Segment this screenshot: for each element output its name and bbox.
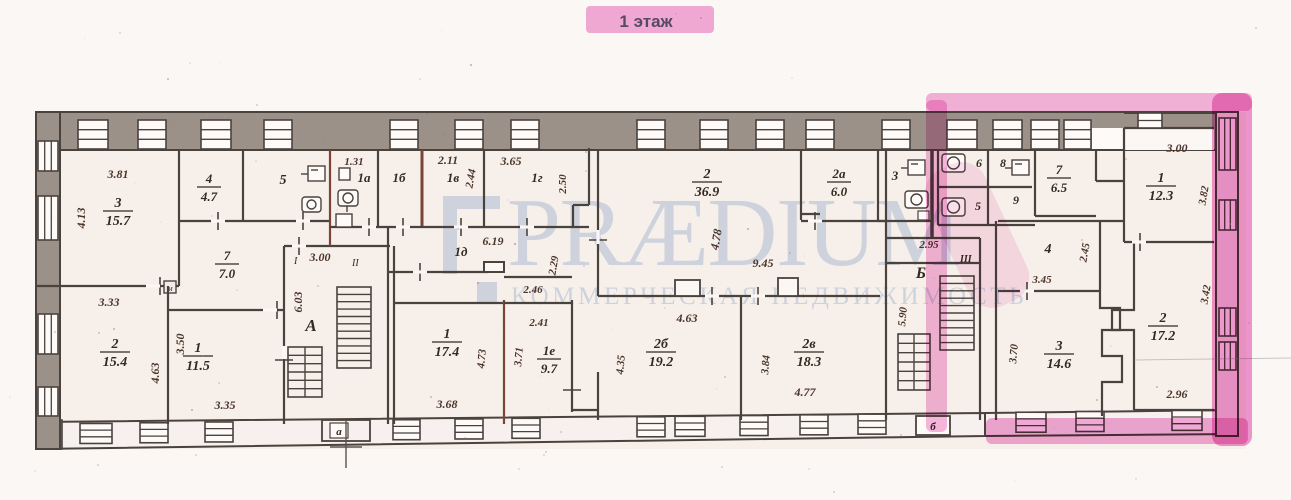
svg-text:2: 2 xyxy=(1159,311,1167,326)
svg-text:3.65: 3.65 xyxy=(500,154,522,168)
svg-text:2: 2 xyxy=(111,337,119,352)
svg-text:6.19: 6.19 xyxy=(483,234,504,248)
svg-text:4.35: 4.35 xyxy=(614,354,628,376)
svg-text:3.50: 3.50 xyxy=(173,334,187,356)
svg-text:2.46: 2.46 xyxy=(522,284,543,296)
svg-text:2.50: 2.50 xyxy=(557,174,569,195)
svg-text:3.33: 3.33 xyxy=(98,295,120,309)
svg-text:9.7: 9.7 xyxy=(541,361,558,376)
svg-text:3.81: 3.81 xyxy=(107,167,129,181)
svg-text:1а: 1а xyxy=(358,170,372,185)
svg-text:PRÆDIUM: PRÆDIUM xyxy=(507,179,960,286)
svg-text:а: а xyxy=(336,426,342,438)
svg-text:6.03: 6.03 xyxy=(291,292,305,313)
svg-text:14.6: 14.6 xyxy=(1047,357,1072,372)
svg-text:3.71: 3.71 xyxy=(512,347,526,368)
svg-text:3.70: 3.70 xyxy=(1007,343,1021,365)
svg-text:1: 1 xyxy=(1158,171,1165,186)
svg-text:2: 2 xyxy=(703,167,711,182)
svg-text:18.3: 18.3 xyxy=(797,355,822,370)
svg-text:3.45: 3.45 xyxy=(1031,274,1052,286)
svg-text:3.84: 3.84 xyxy=(759,354,773,376)
svg-text:3.68: 3.68 xyxy=(436,397,458,411)
svg-text:17.2: 17.2 xyxy=(1151,329,1176,344)
svg-text:1: 1 xyxy=(195,341,202,356)
svg-text:1: 1 xyxy=(444,327,451,342)
svg-text:6.0: 6.0 xyxy=(831,184,848,199)
svg-text:I: I xyxy=(293,256,298,267)
svg-text:5.90: 5.90 xyxy=(896,306,910,327)
svg-text:2б: 2б xyxy=(653,337,669,352)
svg-text:1в: 1в xyxy=(447,170,460,185)
svg-text:7: 7 xyxy=(224,248,231,263)
svg-text:2в: 2в xyxy=(801,337,816,352)
svg-text:4.63: 4.63 xyxy=(148,363,162,385)
svg-text:2а: 2а xyxy=(832,166,847,181)
svg-text:4.7: 4.7 xyxy=(200,189,218,204)
svg-text:4: 4 xyxy=(205,171,213,186)
svg-text:4: 4 xyxy=(1044,242,1052,257)
svg-text:II: II xyxy=(351,258,359,269)
svg-text:2.96: 2.96 xyxy=(1166,387,1188,401)
svg-text:3.00: 3.00 xyxy=(1166,141,1188,155)
svg-text:А: А xyxy=(304,316,316,335)
svg-text:2.41: 2.41 xyxy=(528,317,548,329)
svg-text:3.35: 3.35 xyxy=(214,398,236,412)
svg-text:11.5: 11.5 xyxy=(186,359,210,374)
svg-text:7: 7 xyxy=(1056,162,1063,177)
svg-text:4.73: 4.73 xyxy=(475,348,489,370)
svg-text:19.2: 19.2 xyxy=(649,355,674,370)
svg-text:15.7: 15.7 xyxy=(106,214,132,229)
svg-text:12.3: 12.3 xyxy=(1149,189,1174,204)
svg-text:7.0: 7.0 xyxy=(219,266,236,281)
svg-text:36.9: 36.9 xyxy=(694,185,720,200)
svg-text:1б: 1б xyxy=(393,170,407,185)
svg-text:1е: 1е xyxy=(543,343,556,358)
svg-text:1д: 1д xyxy=(455,244,469,259)
svg-text:3.00: 3.00 xyxy=(309,250,331,264)
svg-text:4.63: 4.63 xyxy=(676,311,698,325)
svg-text:3: 3 xyxy=(1055,339,1063,354)
svg-text:1.31: 1.31 xyxy=(344,156,363,168)
svg-text:5: 5 xyxy=(280,173,287,188)
svg-text:3: 3 xyxy=(891,168,899,183)
svg-text:1г: 1г xyxy=(531,170,543,185)
svg-text:15.4: 15.4 xyxy=(103,355,128,370)
svg-text:9: 9 xyxy=(1013,193,1019,207)
svg-text:2.11: 2.11 xyxy=(437,153,458,167)
svg-text:1 этаж: 1 этаж xyxy=(619,12,673,31)
svg-text:4.13: 4.13 xyxy=(74,208,88,230)
svg-text:4.77: 4.77 xyxy=(794,385,817,399)
svg-text:9.45: 9.45 xyxy=(753,256,774,270)
svg-text:Б: Б xyxy=(915,265,926,282)
svg-text:6.5: 6.5 xyxy=(1051,180,1068,195)
svg-text:3: 3 xyxy=(114,196,122,211)
svg-text:17.4: 17.4 xyxy=(435,345,460,360)
